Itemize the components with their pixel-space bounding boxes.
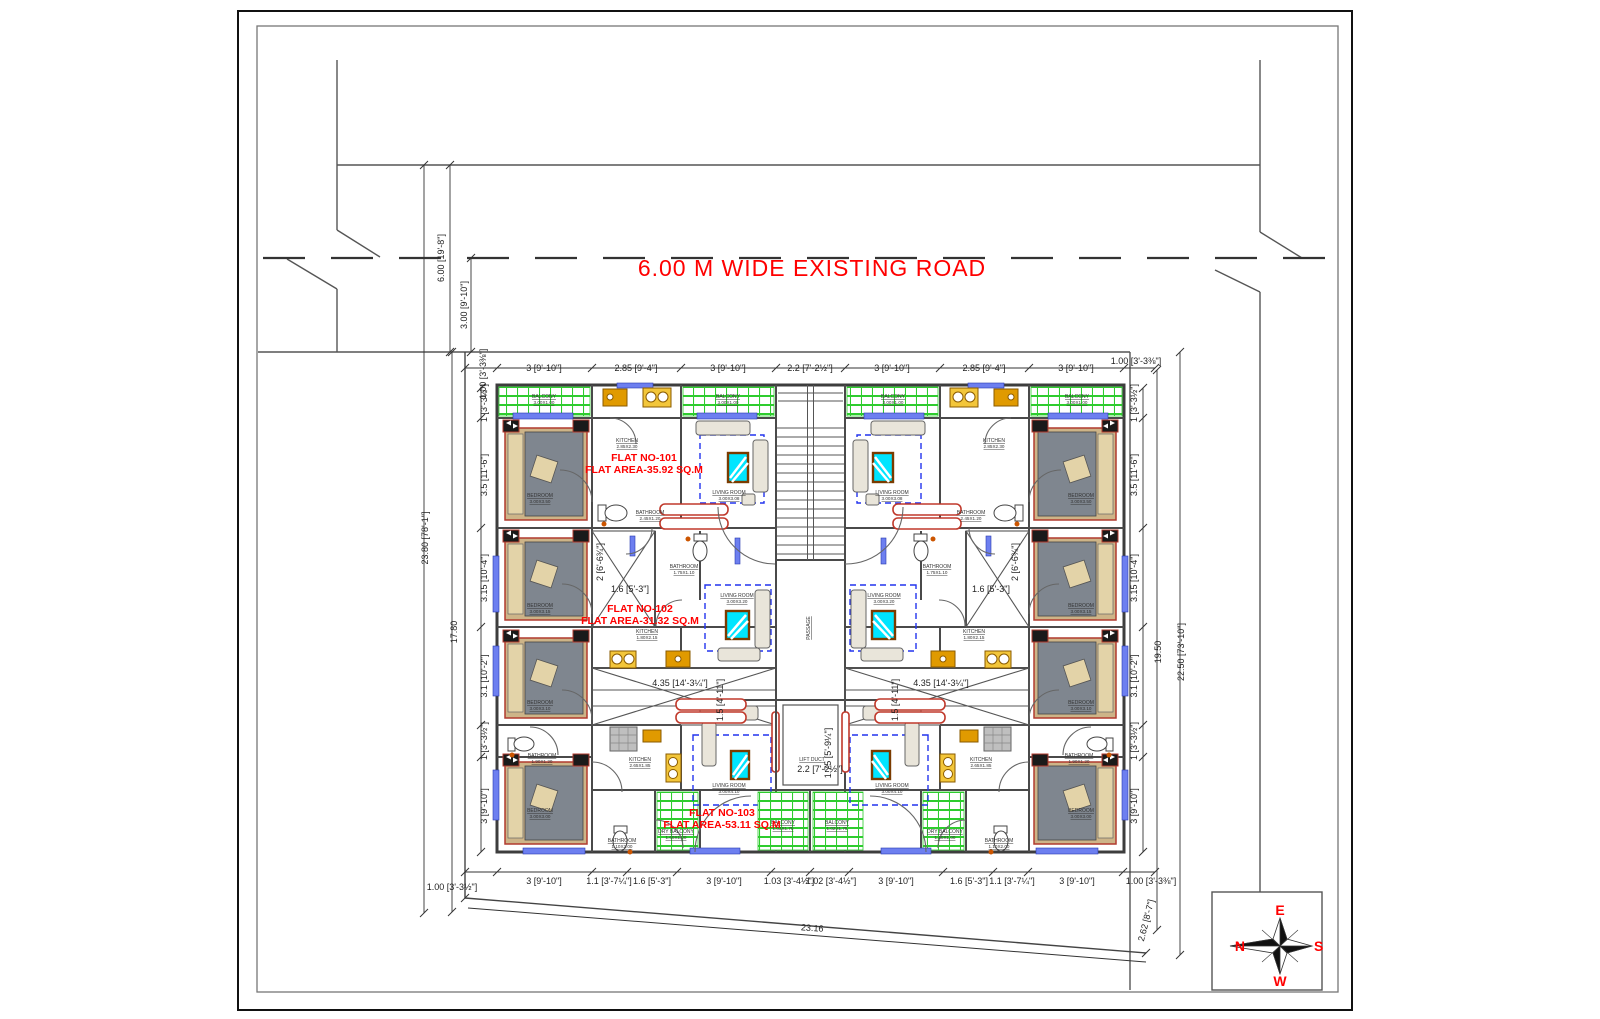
room-label: BATHROOM1.10X2.00 xyxy=(608,838,637,849)
dimension-label: 3 [9'-10"] xyxy=(526,363,561,373)
dimension-label: 3.5 [11'-6"] xyxy=(479,454,489,496)
dimension-label: 3.1 [10'-2"] xyxy=(1129,655,1139,698)
svg-text:2.45X1.20: 2.45X1.20 xyxy=(961,516,982,521)
dimension-label: 3.15 [10'-4"] xyxy=(1129,554,1139,602)
room-label: KITCHEN1.80X2.15 xyxy=(963,629,985,640)
room-label: LIFT DUCT xyxy=(799,757,824,763)
svg-text:3.00X1.00: 3.00X1.00 xyxy=(534,400,555,405)
dimension-label: 3 [9'-10"] xyxy=(526,876,561,886)
svg-text:1.90X1.20: 1.90X1.20 xyxy=(1069,759,1090,764)
dimension-label: 1.00 [3'-3½"] xyxy=(427,882,477,892)
bed xyxy=(1032,420,1118,520)
tv xyxy=(873,453,893,482)
tv xyxy=(731,751,749,779)
dimension-label: 1.75 [5'-9¼"] xyxy=(823,728,833,778)
dimension-label: 3 [9'-10"] xyxy=(479,788,489,823)
tv xyxy=(872,611,895,639)
dimension-label: 1 [3'-3½"] xyxy=(479,722,489,760)
tv xyxy=(728,453,748,482)
dimension-label: 1.6 [5'-3"] xyxy=(972,584,1010,594)
dimension-label: 3 [9'-10"] xyxy=(1129,788,1139,823)
svg-text:3.00X3.10: 3.00X3.10 xyxy=(530,706,551,711)
dimension-label: 1 [3'-3½"] xyxy=(479,384,489,422)
dimension-label: 1.6 [5'-3"] xyxy=(611,584,649,594)
room-label: BATHROOM1.90X1.20 xyxy=(1065,753,1094,764)
svg-text:LIFT DUCT: LIFT DUCT xyxy=(799,757,824,763)
dimension-label: 3.15 [10'-4"] xyxy=(479,554,489,602)
svg-text:3.00X3.15: 3.00X3.15 xyxy=(530,609,551,614)
svg-text:3.00X3.15: 3.00X3.15 xyxy=(1071,609,1092,614)
svg-text:2.65X1.85: 2.65X1.85 xyxy=(630,763,651,768)
svg-text:1.60X1.00: 1.60X1.00 xyxy=(666,835,687,840)
room-label: KITCHEN2.65X1.85 xyxy=(629,757,651,768)
svg-text:3.00X3.50: 3.00X3.50 xyxy=(530,499,551,504)
dimension-label: 2 [6'-6¾"] xyxy=(1010,543,1020,581)
room-label: KITCHEN2.65X1.85 xyxy=(970,757,992,768)
svg-text:1.10X2.00: 1.10X2.00 xyxy=(612,844,633,849)
dimension-label: 23.80 [78'-1"] xyxy=(420,512,430,565)
dimension-label: 1.6 [5'-3"] xyxy=(950,876,988,886)
svg-text:3.00X4.10: 3.00X4.10 xyxy=(719,789,740,794)
room-label: BALCONY3.00X1.00 xyxy=(716,394,741,405)
bed xyxy=(503,754,589,844)
road-label: 6.00 M WIDE EXISTING ROAD xyxy=(638,255,986,281)
dimension-label: 3 [9'-10"] xyxy=(1059,876,1094,886)
room-label: BALCONY3.00X1.00 xyxy=(1065,394,1090,405)
room-label: BEDROOM3.00X3.15 xyxy=(1068,603,1094,614)
svg-text:2.85X2.30: 2.85X2.30 xyxy=(984,444,1005,449)
dimension-label: 19.50 xyxy=(1153,641,1163,664)
bed xyxy=(1032,754,1118,844)
compass-n: N xyxy=(1235,938,1245,954)
dimension-label: 1.5 [4'-11"] xyxy=(715,679,725,721)
svg-text:1.10X2.00: 1.10X2.00 xyxy=(989,844,1010,849)
svg-text:3.00X3.08: 3.00X3.08 xyxy=(882,496,903,501)
dimension-label: 3 [9'-10"] xyxy=(710,363,745,373)
svg-text:1.02X1.75: 1.02X1.75 xyxy=(827,826,848,831)
dimension-label: 4.35 [14'-3¼"] xyxy=(913,678,968,688)
svg-text:3.00X3.10: 3.00X3.10 xyxy=(1071,706,1092,711)
svg-text:3.00X3.20: 3.00X3.20 xyxy=(727,599,748,604)
svg-text:1.60X1.00: 1.60X1.00 xyxy=(935,835,956,840)
svg-text:2.85X2.30: 2.85X2.30 xyxy=(617,444,638,449)
room-label: BEDROOM3.00X3.00 xyxy=(1068,808,1094,819)
room-label: KITCHEN2.85X2.30 xyxy=(616,438,638,449)
dimension-label: 3.1 [10'-2"] xyxy=(479,655,489,698)
dimension-label: 6.00 [19'-8"] xyxy=(436,234,446,282)
room-label: BALCONY3.00X1.00 xyxy=(532,394,557,405)
dimension-label: 3.5 [11'-6"] xyxy=(1129,454,1139,496)
room-label: BATHROOM1.10X2.00 xyxy=(985,838,1014,849)
dimension-label: 1.6 [5'-3"] xyxy=(633,876,671,886)
dimension-label: 1.00 [3'-3⅜"] xyxy=(1111,356,1161,366)
svg-text:1.75X1.10: 1.75X1.10 xyxy=(927,570,948,575)
dimension-label: 2.2 [7'-2½"] xyxy=(797,764,842,774)
svg-text:3.00X3.00: 3.00X3.00 xyxy=(1071,814,1092,819)
room-label: BATHROOM1.90X1.20 xyxy=(528,753,557,764)
tv xyxy=(726,611,749,639)
svg-text:3.00X3.50: 3.00X3.50 xyxy=(1071,499,1092,504)
svg-text:FLAT NO-103: FLAT NO-103 xyxy=(689,807,755,819)
svg-text:1.75X1.10: 1.75X1.10 xyxy=(674,570,695,575)
dimension-label: 3 [9'-10"] xyxy=(1058,363,1093,373)
room-label: KITCHEN2.85X2.30 xyxy=(983,438,1005,449)
dimension-label: 3.00 [9'-10"] xyxy=(459,281,469,329)
room-label: BEDROOM3.00X3.50 xyxy=(1068,493,1094,504)
tv xyxy=(872,751,890,779)
bed xyxy=(503,420,589,520)
room-label: BEDROOM3.00X3.00 xyxy=(527,808,553,819)
svg-text:PASSAGE: PASSAGE xyxy=(806,616,812,640)
room-label: BEDROOM3.00X3.15 xyxy=(527,603,553,614)
room-label: BEDROOM3.00X3.50 xyxy=(527,493,553,504)
room-label: BALCONY3.00X1.00 xyxy=(881,394,906,405)
svg-text:1.80X2.15: 1.80X2.15 xyxy=(637,635,658,640)
svg-text:3.00X1.00: 3.00X1.00 xyxy=(883,400,904,405)
svg-text:3.00X1.00: 3.00X1.00 xyxy=(718,400,739,405)
dimension-label: 1.02 [3'-4½"] xyxy=(806,876,856,886)
svg-text:1.90X1.20: 1.90X1.20 xyxy=(532,759,553,764)
dimension-label: 1.1 [3'-7¼"] xyxy=(989,876,1034,886)
svg-text:FLAT NO-101: FLAT NO-101 xyxy=(611,452,677,464)
dimension-label: 3 [9'-10"] xyxy=(706,876,741,886)
svg-text:FLAT AREA-53.11 SQ.M: FLAT AREA-53.11 SQ.M xyxy=(663,819,781,831)
svg-text:FLAT AREA-31.32 SQ.M: FLAT AREA-31.32 SQ.M xyxy=(581,615,699,627)
dimension-label: 23.16 xyxy=(801,922,824,934)
svg-text:FLAT NO-102: FLAT NO-102 xyxy=(607,603,673,615)
dimension-label: 1.00 [3'-3⅜"] xyxy=(1126,876,1176,886)
dimension-label: 2.62 [8'-7"] xyxy=(1136,898,1156,942)
svg-text:3.00X3.00: 3.00X3.00 xyxy=(530,814,551,819)
room-label: PASSAGE xyxy=(806,616,812,640)
dimension-label: 17.80 xyxy=(449,621,459,644)
dimension-label: 2.85 [9'-4"] xyxy=(963,363,1006,373)
dimension-label: 1.5 [4'-11"] xyxy=(890,679,900,721)
room-label: BATHROOM2.45X1.20 xyxy=(957,510,986,521)
svg-text:3.00X3.08: 3.00X3.08 xyxy=(719,496,740,501)
room-label: BEDROOM3.00X3.10 xyxy=(1068,700,1094,711)
dimension-label: 2.2 [7'-2½"] xyxy=(787,363,832,373)
room-label: BEDROOM3.00X3.10 xyxy=(527,700,553,711)
room-label: BATHROOM1.75X1.10 xyxy=(670,564,699,575)
compass: E S W N xyxy=(1212,892,1323,990)
svg-text:2.45X1.20: 2.45X1.20 xyxy=(640,516,661,521)
room-label: KITCHEN1.80X2.15 xyxy=(636,629,658,640)
dimension-label: 3 [9'-10"] xyxy=(878,876,913,886)
dimension-label: 2.85 [9'-4"] xyxy=(615,363,658,373)
compass-e: E xyxy=(1275,902,1284,918)
dimension-label: 4.35 [14'-3¼"] xyxy=(652,678,707,688)
compass-w: W xyxy=(1273,973,1287,989)
svg-text:FLAT AREA-35.92 SQ.M: FLAT AREA-35.92 SQ.M xyxy=(585,464,703,476)
svg-text:3.00X1.00: 3.00X1.00 xyxy=(1067,400,1088,405)
compass-s: S xyxy=(1314,938,1323,954)
room-label: BALCONY1.02X1.75 xyxy=(825,820,850,831)
svg-text:1.80X2.15: 1.80X2.15 xyxy=(964,635,985,640)
dimension-label: 2 [6'-6¾"] xyxy=(595,543,605,581)
dimension-label: 3 [9'-10"] xyxy=(874,363,909,373)
dimension-label: 1.1 [3'-7¼"] xyxy=(586,876,631,886)
floor-plan-sheet: 6.00 M WIDE EXISTING ROAD xyxy=(0,0,1600,1019)
room-label: BATHROOM2.45X1.20 xyxy=(636,510,665,521)
svg-text:3.00X3.20: 3.00X3.20 xyxy=(874,599,895,604)
dimension-label: 22.50 [73'-10"] xyxy=(1176,623,1186,681)
room-label: BATHROOM1.75X1.10 xyxy=(923,564,952,575)
floor-plan-drawing: 6.00 M WIDE EXISTING ROAD xyxy=(0,0,1600,1019)
dimension-label: 1 [3'-3½"] xyxy=(1129,384,1139,422)
svg-text:3.00X4.10: 3.00X4.10 xyxy=(882,789,903,794)
dimension-label: 1 [3'-3½"] xyxy=(1129,722,1139,760)
svg-text:2.65X1.85: 2.65X1.85 xyxy=(971,763,992,768)
